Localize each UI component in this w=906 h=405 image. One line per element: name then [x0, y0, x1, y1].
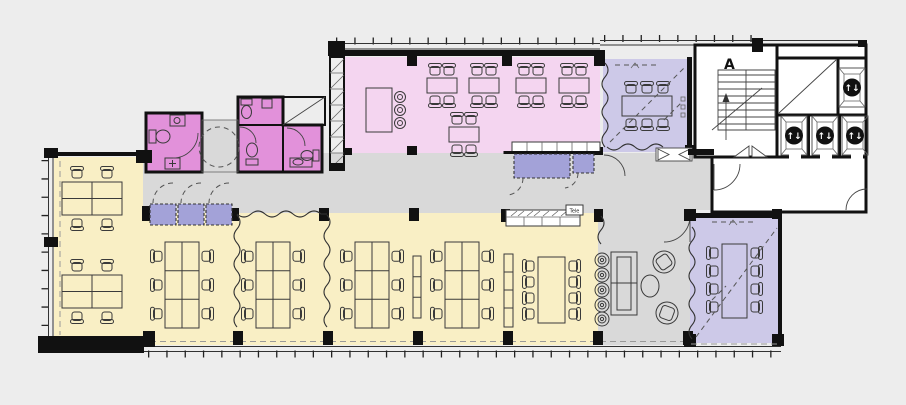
room-meeting-north — [603, 59, 690, 152]
serving-counter — [505, 142, 600, 153]
zone-vestibule — [202, 120, 238, 172]
phone-booth-label: Tele — [569, 209, 580, 215]
floor-plan: ↑↓ — [0, 0, 906, 405]
room-meeting-south — [690, 217, 780, 343]
floor-plan-drawing: ↑↓ — [0, 0, 906, 405]
stair-label: A — [724, 57, 735, 73]
